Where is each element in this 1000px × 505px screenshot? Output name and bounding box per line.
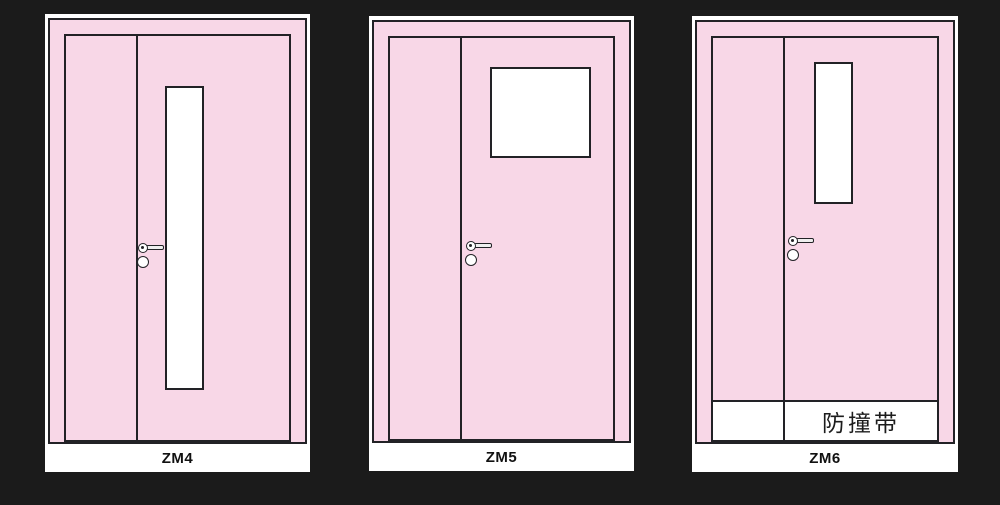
handle-lever-icon <box>796 238 814 243</box>
handle-spindle-dot <box>469 244 472 247</box>
handle-knob-icon <box>138 243 148 253</box>
door-label: ZM5 <box>369 443 634 471</box>
vision-panel-glass <box>165 86 204 390</box>
door-handle-icon <box>466 241 476 251</box>
door-handle-icon <box>788 236 798 246</box>
handle-knob-icon <box>466 241 476 251</box>
door-figure-zm5: ZM5 <box>369 16 634 471</box>
door-leaves: 防撞带 <box>711 36 939 442</box>
door-leaves <box>64 34 291 442</box>
leaf-divider-line <box>783 38 785 440</box>
door-diagram-canvas: ZM4 ZM5 <box>0 0 1000 505</box>
lock-cylinder-icon <box>465 254 477 266</box>
door-leaves <box>388 36 615 441</box>
lock-cylinder-icon <box>787 249 799 261</box>
vision-panel-glass <box>490 67 591 158</box>
door-label: ZM6 <box>692 444 958 472</box>
handle-lever-icon <box>474 243 492 248</box>
handle-spindle-dot <box>141 246 144 249</box>
leaf-divider-line <box>460 38 462 439</box>
door-handle-icon <box>138 243 148 253</box>
vision-panel-glass <box>814 62 853 204</box>
handle-spindle-dot <box>791 239 794 242</box>
handle-lever-icon <box>146 245 164 250</box>
anti-collision-band: 防撞带 <box>713 400 937 440</box>
door-figure-zm6: 防撞带 ZM6 <box>692 16 958 472</box>
leaf-divider-line <box>136 36 138 440</box>
door-figure-zm4: ZM4 <box>45 14 310 472</box>
anti-collision-band-label: 防撞带 <box>785 402 937 440</box>
handle-knob-icon <box>788 236 798 246</box>
door-label: ZM4 <box>45 444 310 472</box>
lock-cylinder-icon <box>137 256 149 268</box>
